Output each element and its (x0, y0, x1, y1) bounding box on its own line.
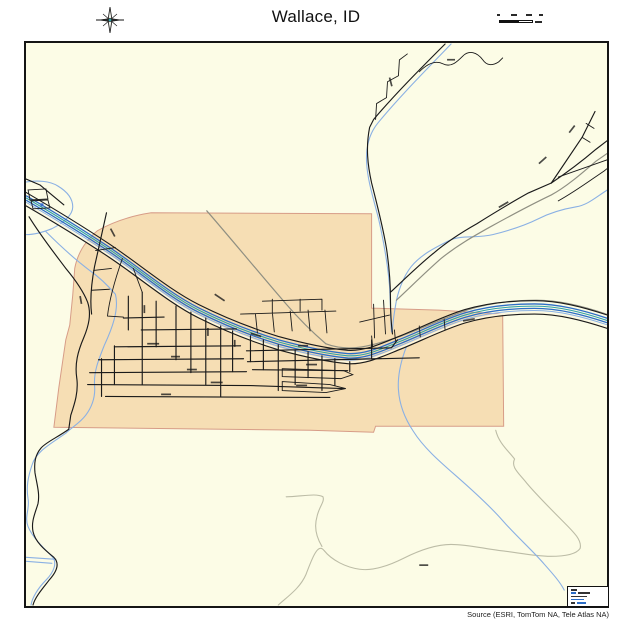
trail-path (278, 430, 580, 605)
map-page: Wallace, ID (0, 0, 632, 632)
legend-text-mark (571, 602, 575, 604)
scale-units-mark (535, 21, 542, 23)
source-attribution: Source (ESRI, TomTom NA, Tele Atlas NA) (467, 610, 609, 619)
legend-swatch (571, 592, 576, 594)
scale-tick (497, 14, 500, 16)
northwest-roads (26, 179, 64, 209)
legend-text-mark (571, 596, 587, 598)
scale-tick (539, 14, 543, 16)
point-marker (40, 203, 43, 206)
legend-swatch (577, 602, 586, 604)
map-legend (567, 586, 609, 607)
scale-tick (526, 14, 532, 16)
scale-tick (511, 14, 517, 16)
scale-bar (496, 12, 546, 26)
legend-swatch (571, 599, 584, 601)
north-canyon-roads (367, 44, 502, 334)
northeast-roads (390, 112, 607, 293)
scale-segment-solid (499, 20, 518, 23)
map-canvas (24, 41, 609, 608)
legend-title-mark (571, 589, 577, 591)
map-graphics (26, 43, 607, 606)
legend-text-mark (578, 592, 590, 594)
scale-segment-open (518, 20, 533, 23)
